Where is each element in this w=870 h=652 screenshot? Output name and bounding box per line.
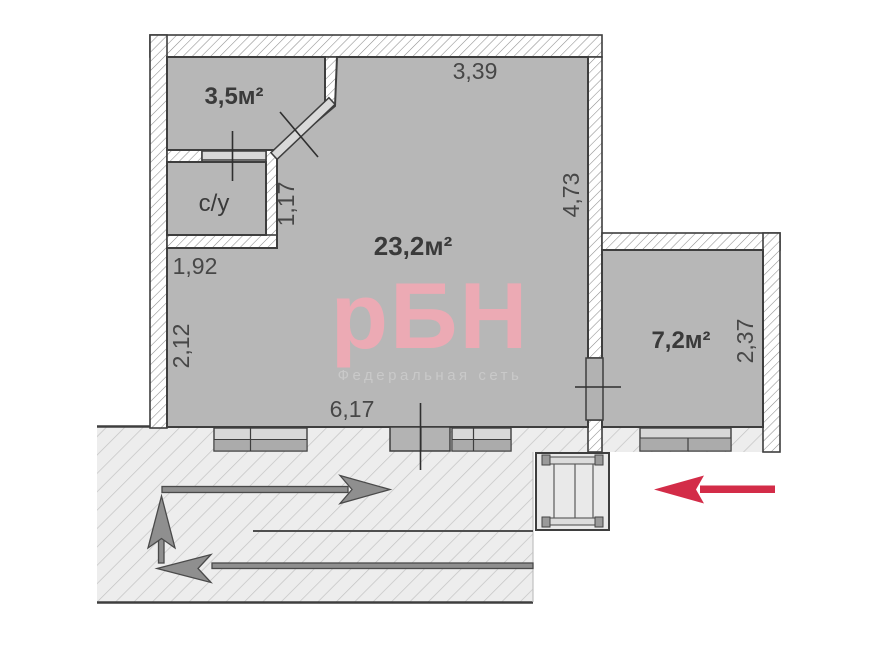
wall-left <box>150 35 167 428</box>
main-area-label: 23,2м² <box>374 231 453 261</box>
window-main-right <box>452 428 511 451</box>
dim-main-top: 3,39 <box>453 58 498 84</box>
dim-bathroom-side: 1,17 <box>273 182 299 227</box>
floor-plan: рБН Федеральная сеть <box>0 0 870 652</box>
wall-bedroom-top <box>602 233 780 250</box>
window-bedroom <box>640 428 731 451</box>
floor-plan-image: рБН Федеральная сеть <box>0 0 870 652</box>
hallway-area-label: 3,5м² <box>204 83 263 110</box>
dim-bathroom-bottom: 1,92 <box>173 253 218 279</box>
bathroom-name-label: с/у <box>199 190 230 217</box>
dim-main-bottom: 6,17 <box>330 396 375 422</box>
watermark: рБН Федеральная сеть <box>331 263 530 384</box>
wall-bathroom-top-left <box>167 150 202 162</box>
dim-bedroom-right: 2,37 <box>732 319 758 364</box>
watermark-tagline: Федеральная сеть <box>338 367 523 384</box>
dim-main-right: 4,73 <box>558 173 584 218</box>
wall-bathroom-bottom <box>167 235 277 248</box>
wall-bedroom-right <box>763 233 780 452</box>
window-main-left <box>214 428 307 451</box>
wall-right-lower <box>588 420 602 452</box>
watermark-logo: рБН <box>331 263 530 368</box>
wall-right-upper <box>588 57 602 358</box>
dim-main-left: 2,12 <box>168 324 194 369</box>
wall-top <box>150 35 602 57</box>
elevator-shaft <box>536 453 609 530</box>
bedroom-area-label: 7,2м² <box>651 327 710 354</box>
entrance-arrow-icon <box>654 476 775 504</box>
